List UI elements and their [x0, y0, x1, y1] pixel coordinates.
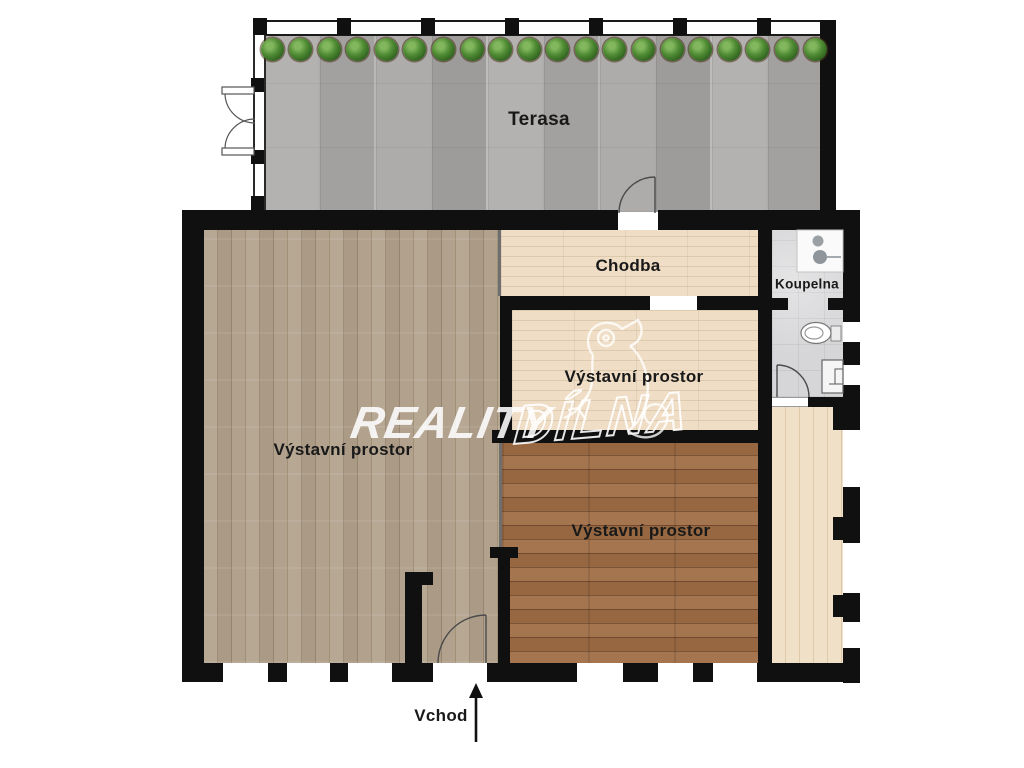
- plant-icon: [575, 38, 598, 61]
- plant-icon: [518, 38, 541, 61]
- wall-divider-lower: [498, 547, 510, 663]
- railing-post: [337, 18, 351, 35]
- railing-post: [757, 18, 771, 35]
- wall-middle-room-left: [500, 296, 512, 443]
- entrance-label: Vchod: [414, 706, 467, 726]
- plant-icon: [375, 38, 398, 61]
- open-boundary-line: [499, 443, 502, 547]
- plant-icon: [661, 38, 684, 61]
- railing-post: [505, 18, 519, 35]
- plant-icon: [289, 38, 312, 61]
- window: [843, 365, 860, 385]
- bathroom-floor: [772, 230, 843, 397]
- railing-post: [673, 18, 687, 35]
- terrace-double-door-icon: [222, 87, 255, 155]
- plant-icon: [461, 38, 484, 61]
- wall-bathroom-bottom: [808, 397, 843, 407]
- wall-chodba-bottom: [697, 296, 772, 310]
- wall-outer-left: [182, 210, 204, 682]
- wall-bathroom-divider: [772, 298, 788, 310]
- floor-plan: REALITY DÍLNA Terasa Chodba Koupelna Výs…: [0, 0, 1024, 768]
- window: [843, 543, 860, 593]
- plant-icon: [489, 38, 512, 61]
- wall-pillar: [833, 407, 843, 430]
- wall-outer-top: [182, 210, 618, 230]
- window: [713, 663, 757, 682]
- entrance-opening: [433, 663, 487, 682]
- wall-interior-right-column: [758, 228, 772, 666]
- window: [843, 622, 860, 648]
- plant-icon: [632, 38, 655, 61]
- open-boundary-line: [498, 230, 501, 296]
- railing-post: [421, 18, 435, 35]
- room-label-exhibition-left: Výstavní prostor: [274, 440, 413, 460]
- railing-jamb: [251, 150, 264, 164]
- wall-pillar: [833, 595, 843, 617]
- railing-post: [253, 18, 267, 35]
- plant-icon: [261, 38, 284, 61]
- plant-icon: [804, 38, 827, 61]
- wall-pillar: [833, 517, 843, 540]
- plant-icon: [775, 38, 798, 61]
- wall-chodba-bottom: [500, 296, 650, 310]
- wall-bathroom-divider: [828, 298, 843, 310]
- room-label-exhibition-bottom: Výstavní prostor: [572, 521, 711, 541]
- room-label-koupelna: Koupelna: [775, 277, 839, 292]
- window: [843, 430, 860, 487]
- window: [577, 663, 623, 682]
- plant-icon: [432, 38, 455, 61]
- plant-icon: [718, 38, 741, 61]
- window: [223, 663, 268, 682]
- room-label-terasa: Terasa: [508, 109, 570, 131]
- bathroom-door-opening: [772, 397, 808, 407]
- window: [348, 663, 392, 682]
- wall-outer-top: [658, 210, 860, 230]
- window: [658, 663, 693, 682]
- railing-post: [589, 18, 603, 35]
- railing-jamb: [251, 78, 264, 92]
- window: [843, 322, 860, 342]
- wall-entry-stub: [405, 572, 422, 663]
- wall-dark-room-top: [492, 430, 772, 443]
- room-label-chodba: Chodba: [595, 256, 660, 276]
- room-label-exhibition-middle: Výstavní prostor: [565, 367, 704, 387]
- plant-icon: [318, 38, 341, 61]
- exhibition-bottom-floor: [502, 443, 760, 665]
- entrance-arrow-icon: [469, 683, 483, 742]
- window: [287, 663, 330, 682]
